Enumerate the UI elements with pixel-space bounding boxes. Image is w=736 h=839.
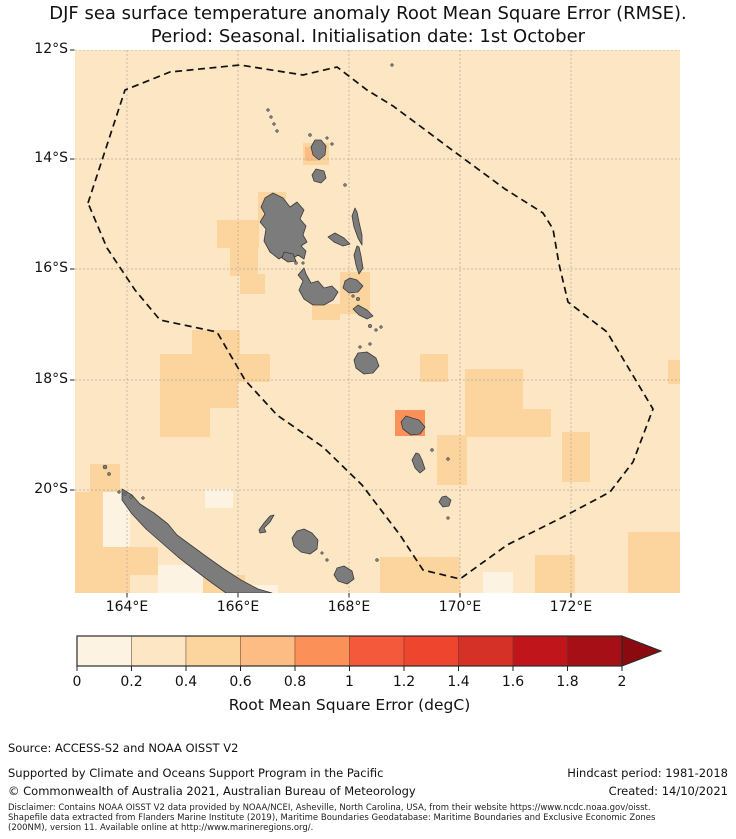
colorbar-tick-label: 0: [73, 674, 82, 690]
rmse-cell: [523, 409, 551, 437]
colorbar-segment: [77, 636, 132, 666]
rmse-cell: [192, 330, 240, 356]
rmse-cell: [562, 432, 590, 482]
islet: [295, 262, 298, 265]
rmse-cell: [535, 555, 575, 595]
colorbar-tick-label: 0.4: [175, 674, 197, 690]
rmse-cell: [103, 547, 130, 595]
islet: [352, 295, 355, 298]
islet: [142, 497, 145, 500]
rmse-cell: [312, 304, 340, 320]
islet: [130, 496, 133, 499]
colorbar-tick-label: 1.2: [393, 674, 415, 690]
colorbar-segment: [568, 636, 623, 666]
islet: [267, 109, 270, 112]
colorbar-segment: [186, 636, 241, 666]
colorbar-segment: [295, 636, 350, 666]
colorbar-segment: [459, 636, 514, 666]
colorbar-tick-label: 2: [618, 674, 627, 690]
islet: [103, 465, 107, 469]
rmse-cell: [240, 274, 265, 294]
rmse-cell: [668, 360, 680, 384]
colorbar-segment: [350, 636, 405, 666]
islet: [376, 559, 379, 562]
rmse-cell: [465, 369, 523, 437]
rmse-cell: [380, 557, 460, 595]
colorbar: 00.20.40.60.811.21.41.61.82: [75, 634, 687, 692]
rmse-cell: [483, 572, 513, 595]
islet: [273, 123, 276, 126]
supported-by-text: Supported by Climate and Oceans Support …: [8, 766, 383, 780]
islet: [447, 517, 450, 520]
islet: [447, 458, 450, 461]
islet: [391, 64, 394, 67]
lon-tick-label: 168°E: [314, 599, 384, 615]
rmse-cell: [628, 532, 680, 595]
colorbar-tick-label: 1.6: [502, 674, 524, 690]
rmse-cell: [160, 380, 210, 437]
copyright-text: © Commonwealth of Australia 2021, Austra…: [8, 784, 416, 798]
colorbar-tick-label: 1: [345, 674, 354, 690]
islet: [331, 143, 334, 146]
lat-tick-label: 18°S: [0, 371, 68, 387]
islet: [369, 343, 372, 346]
islet: [359, 346, 362, 349]
hindcast-period-text: Hindcast period: 1981-2018: [567, 766, 728, 780]
colorbar-over-arrow: [622, 636, 661, 666]
islet: [344, 184, 347, 187]
islet: [270, 116, 273, 119]
islet: [375, 329, 378, 332]
colorbar-segment: [513, 636, 568, 666]
rmse-cell: [210, 382, 238, 408]
rmse-cell: [205, 489, 233, 508]
rmse-cell: [130, 547, 158, 575]
lat-tick-label: 20°S: [0, 481, 68, 497]
islet: [326, 137, 329, 140]
islet: [118, 491, 121, 494]
rmse-cell: [75, 492, 103, 595]
lon-tick-label: 170°E: [425, 599, 495, 615]
islet: [368, 324, 372, 328]
islet: [431, 449, 434, 452]
rmse-cell: [230, 248, 258, 276]
colorbar-tick-label: 1.8: [556, 674, 578, 690]
islet: [380, 326, 383, 329]
islet: [309, 134, 312, 137]
source-text: Source: ACCESS-S2 and NOAA OISST V2: [8, 741, 238, 755]
disclaimer-text: Disclaimer: Contains NOAA OISST V2 data …: [8, 804, 734, 833]
islet: [107, 472, 110, 475]
figure-title-line2: Period: Seasonal. Initialisation date: 1…: [0, 25, 736, 48]
map-layers: [75, 50, 680, 595]
lat-tick-label: 12°S: [0, 41, 68, 57]
colorbar-segment: [132, 636, 187, 666]
disclaimer-line: (200NM), version 11. Available online at…: [8, 824, 734, 834]
lat-tick-label: 14°S: [0, 150, 68, 166]
colorbar-tick-label: 0.6: [229, 674, 251, 690]
created-date-text: Created: 14/10/2021: [609, 784, 728, 798]
rmse-cell: [160, 354, 270, 382]
figure-title: DJF sea surface temperature anomaly Root…: [0, 2, 736, 48]
islet: [302, 262, 305, 265]
colorbar-tick-label: 0.8: [284, 674, 306, 690]
islet: [276, 130, 279, 133]
map-canvas: [75, 50, 680, 593]
figure-title-line1: DJF sea surface temperature anomaly Root…: [0, 2, 736, 25]
colorbar-segment: [241, 636, 296, 666]
islet: [321, 552, 324, 555]
rmse-cell: [437, 435, 467, 485]
lon-tick-label: 166°E: [203, 599, 273, 615]
lat-tick-label: 16°S: [0, 260, 68, 276]
figure-root: DJF sea surface temperature anomaly Root…: [0, 0, 736, 839]
rmse-cell: [420, 354, 448, 382]
colorbar-tick-label: 0.2: [120, 674, 142, 690]
lon-tick-label: 172°E: [536, 599, 606, 615]
colorbar-segment: [404, 636, 459, 666]
islet: [326, 559, 329, 562]
islet: [124, 493, 127, 496]
colorbar-tick-label: 1.4: [447, 674, 469, 690]
colorbar-label: Root Mean Square Error (degC): [75, 696, 624, 714]
islet: [356, 297, 360, 301]
lon-tick-label: 164°E: [92, 599, 162, 615]
